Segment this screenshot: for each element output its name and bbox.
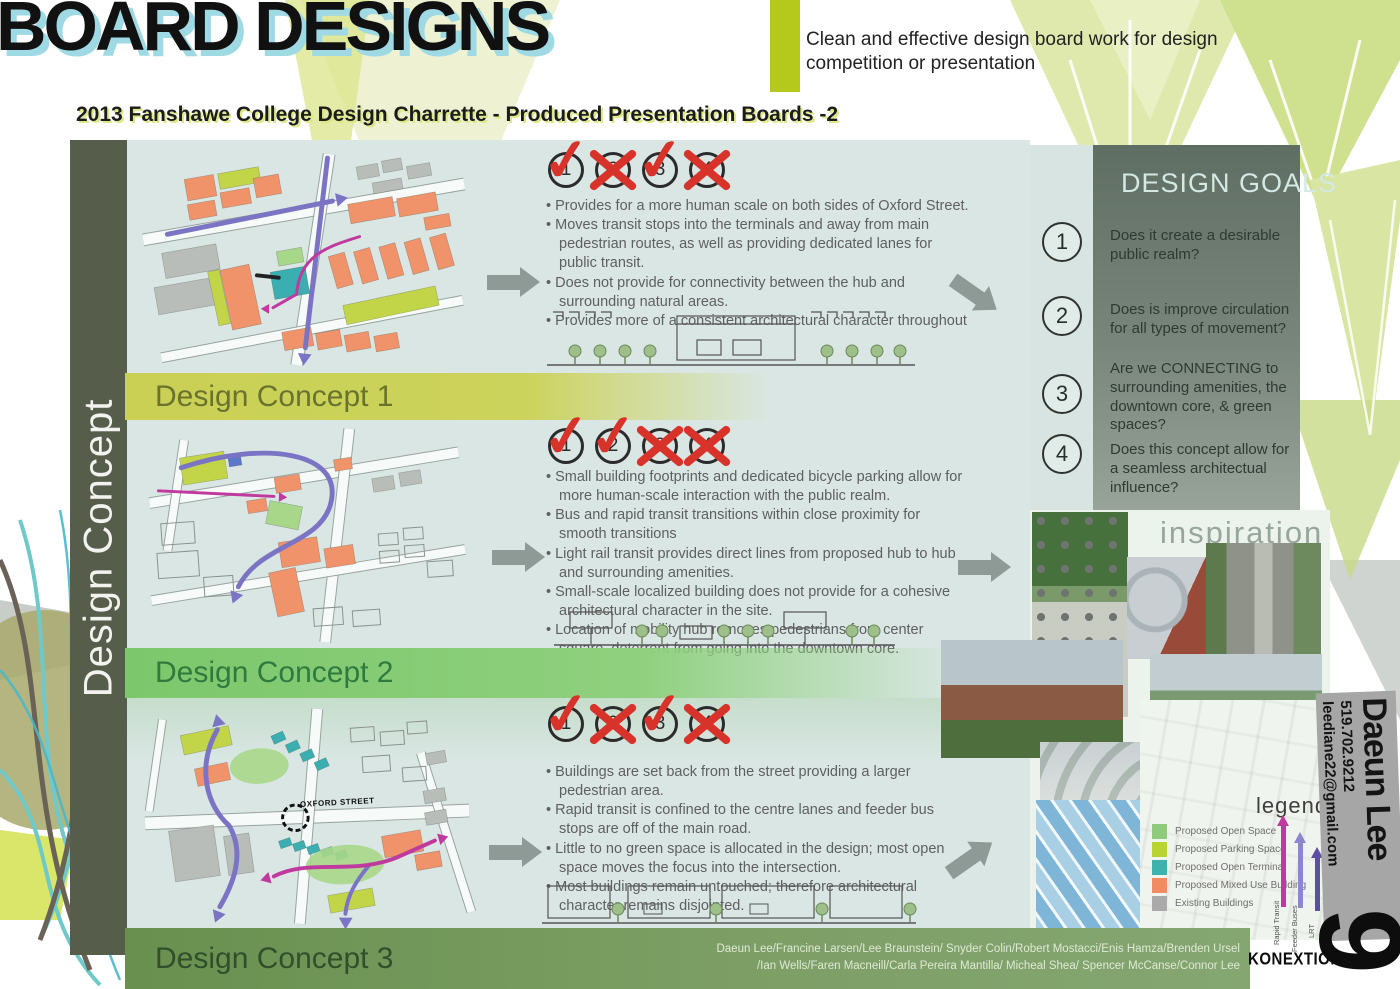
rating-circle: 3 bbox=[642, 428, 678, 464]
konextion-logo: KONEXTION bbox=[1248, 950, 1342, 970]
concept2-ratings: 1 2 3 4 bbox=[548, 428, 725, 464]
rating-number: 3 bbox=[655, 713, 666, 735]
concept3-header-band: Design Concept 3 Daeun Lee/Francine Lars… bbox=[125, 928, 1250, 989]
bullet: Moves transit stops into the terminals a… bbox=[546, 216, 970, 273]
board-number: 9 bbox=[1312, 893, 1400, 989]
concept3-street-section-sketch bbox=[540, 878, 918, 928]
goal-text: Are we CONNECTING to surrounding ameniti… bbox=[1110, 360, 1292, 435]
legend-item: Proposed Parking Space bbox=[1152, 842, 1286, 857]
concept2-header-band: Design Concept 2 bbox=[125, 648, 955, 698]
rating-circle: 3 bbox=[642, 152, 678, 188]
concept2-street-section-sketch bbox=[552, 608, 897, 650]
rating-circle: 1 bbox=[548, 428, 584, 464]
tagline-line2: competition or presentation bbox=[806, 52, 1256, 76]
legend-chip bbox=[1152, 860, 1167, 875]
bullet: Small building footprints and dedicated … bbox=[546, 468, 970, 506]
concept1-header-band: Design Concept 1 bbox=[125, 373, 770, 420]
legend-chip bbox=[1152, 878, 1167, 893]
goal-number: 3 bbox=[1056, 381, 1068, 407]
rating-number: 4 bbox=[702, 435, 713, 457]
goal-text: Does is improve circulation for all type… bbox=[1110, 301, 1292, 339]
rating-circle: 2 bbox=[595, 706, 631, 742]
goal-number-circle: 4 bbox=[1042, 434, 1082, 474]
goal-number: 4 bbox=[1056, 441, 1068, 467]
page-subtitle: 2013 Fanshawe College Design Charrette -… bbox=[76, 103, 838, 127]
goal-number-circle: 1 bbox=[1042, 222, 1082, 262]
legend-item-label: Proposed Parking Space bbox=[1175, 844, 1286, 855]
concept3-title: Design Concept 3 bbox=[155, 942, 393, 976]
goal-number-circle: 2 bbox=[1042, 296, 1082, 336]
page-title: BOARD DESIGNS bbox=[0, 0, 548, 66]
legend-chip bbox=[1152, 842, 1167, 857]
bullet: Little to no green space is allocated in… bbox=[546, 840, 970, 878]
concept3-ratings: 1 2 3 4 bbox=[548, 706, 725, 742]
goal-number-circle: 3 bbox=[1042, 374, 1082, 414]
legend-item: Proposed Open Terminal bbox=[1152, 860, 1285, 875]
rating-circle: 1 bbox=[548, 152, 584, 188]
rating-number: 4 bbox=[702, 713, 713, 735]
rating-circle: 4 bbox=[689, 706, 725, 742]
arrow-right-icon bbox=[487, 275, 521, 290]
tagline: Clean and effective design board work fo… bbox=[806, 28, 1256, 76]
bullet: Bus and rapid transit transitions within… bbox=[546, 506, 970, 544]
concept1-street-section-sketch bbox=[545, 302, 917, 370]
concept2-site-plan bbox=[132, 424, 484, 648]
design-goals-title: DESIGN GOALS bbox=[1121, 168, 1337, 199]
rating-circle: 1 bbox=[548, 706, 584, 742]
rating-circle: 4 bbox=[689, 428, 725, 464]
rating-circle: 3 bbox=[642, 706, 678, 742]
credits: Daeun Lee/Francine Larsen/Lee Braunstein… bbox=[716, 941, 1240, 974]
legend-chip bbox=[1152, 824, 1167, 839]
design-board-page: { "page": { "title": "BOARD DESIGNS", "s… bbox=[0, 0, 1400, 989]
sidebar-label: Design Concept bbox=[76, 398, 121, 697]
legend-item-label: Proposed Open Space bbox=[1175, 826, 1276, 837]
credits-line1: Daeun Lee/Francine Larsen/Lee Braunstein… bbox=[716, 941, 1240, 958]
concept2-title: Design Concept 2 bbox=[155, 656, 393, 690]
credits-line2: /Ian Wells/Faren Macneill/Carla Pereira … bbox=[716, 958, 1240, 975]
concept3-site-plan bbox=[128, 702, 486, 928]
rating-number: 3 bbox=[655, 435, 666, 457]
bullet: Provides for a more human scale on both … bbox=[546, 197, 970, 216]
legend-item-label: Existing Buildings bbox=[1175, 898, 1253, 909]
rating-number: 2 bbox=[608, 435, 619, 457]
rating-number: 1 bbox=[561, 159, 572, 181]
photo-bike-shelter bbox=[1127, 557, 1215, 659]
bullet: Rapid transit is confined to the centre … bbox=[546, 801, 970, 839]
goal-number: 2 bbox=[1056, 303, 1068, 329]
photo-town-houses bbox=[941, 640, 1123, 758]
concept1-ratings: 1 2 3 4 bbox=[548, 152, 725, 188]
legend-arrow-label: Rapid Transit bbox=[1272, 901, 1281, 945]
legend-chip bbox=[1152, 896, 1167, 911]
legend-item-label: Proposed Open Terminal bbox=[1175, 862, 1285, 873]
goal-text: Does it create a desirable public realm? bbox=[1110, 227, 1292, 265]
arrow-right-icon bbox=[492, 550, 526, 565]
phone-number: 519.702.9212 bbox=[1337, 700, 1357, 792]
tagline-accent-block bbox=[770, 0, 800, 92]
tagline-line1: Clean and effective design board work fo… bbox=[806, 28, 1256, 52]
arrow-right-icon bbox=[489, 845, 523, 860]
author-name: Daeun Lee bbox=[1355, 697, 1399, 861]
rating-circle: 4 bbox=[689, 152, 725, 188]
rating-circle: 2 bbox=[595, 152, 631, 188]
legend-item: Existing Buildings bbox=[1152, 896, 1253, 911]
bullet: Buildings are set back from the street p… bbox=[546, 763, 970, 801]
bullet: Light rail transit provides direct lines… bbox=[546, 545, 970, 583]
rating-number: 1 bbox=[561, 435, 572, 457]
rating-number: 4 bbox=[702, 159, 713, 181]
rating-circle: 2 bbox=[595, 428, 631, 464]
rating-number: 2 bbox=[608, 713, 619, 735]
concept1-title: Design Concept 1 bbox=[155, 380, 393, 414]
legend-item-label: Proposed Mixed Use Building bbox=[1175, 880, 1306, 891]
goal-text: Does this concept allow for a seamless a… bbox=[1110, 441, 1292, 497]
photo-street-aerial bbox=[1206, 543, 1321, 655]
goal-number: 1 bbox=[1056, 229, 1068, 255]
legend-item: Proposed Open Space bbox=[1152, 824, 1276, 839]
concept1-site-plan bbox=[128, 146, 486, 372]
sidebar: Design Concept bbox=[70, 140, 127, 955]
rating-number: 3 bbox=[655, 159, 666, 181]
rating-number: 2 bbox=[608, 159, 619, 181]
rating-number: 1 bbox=[561, 713, 572, 735]
